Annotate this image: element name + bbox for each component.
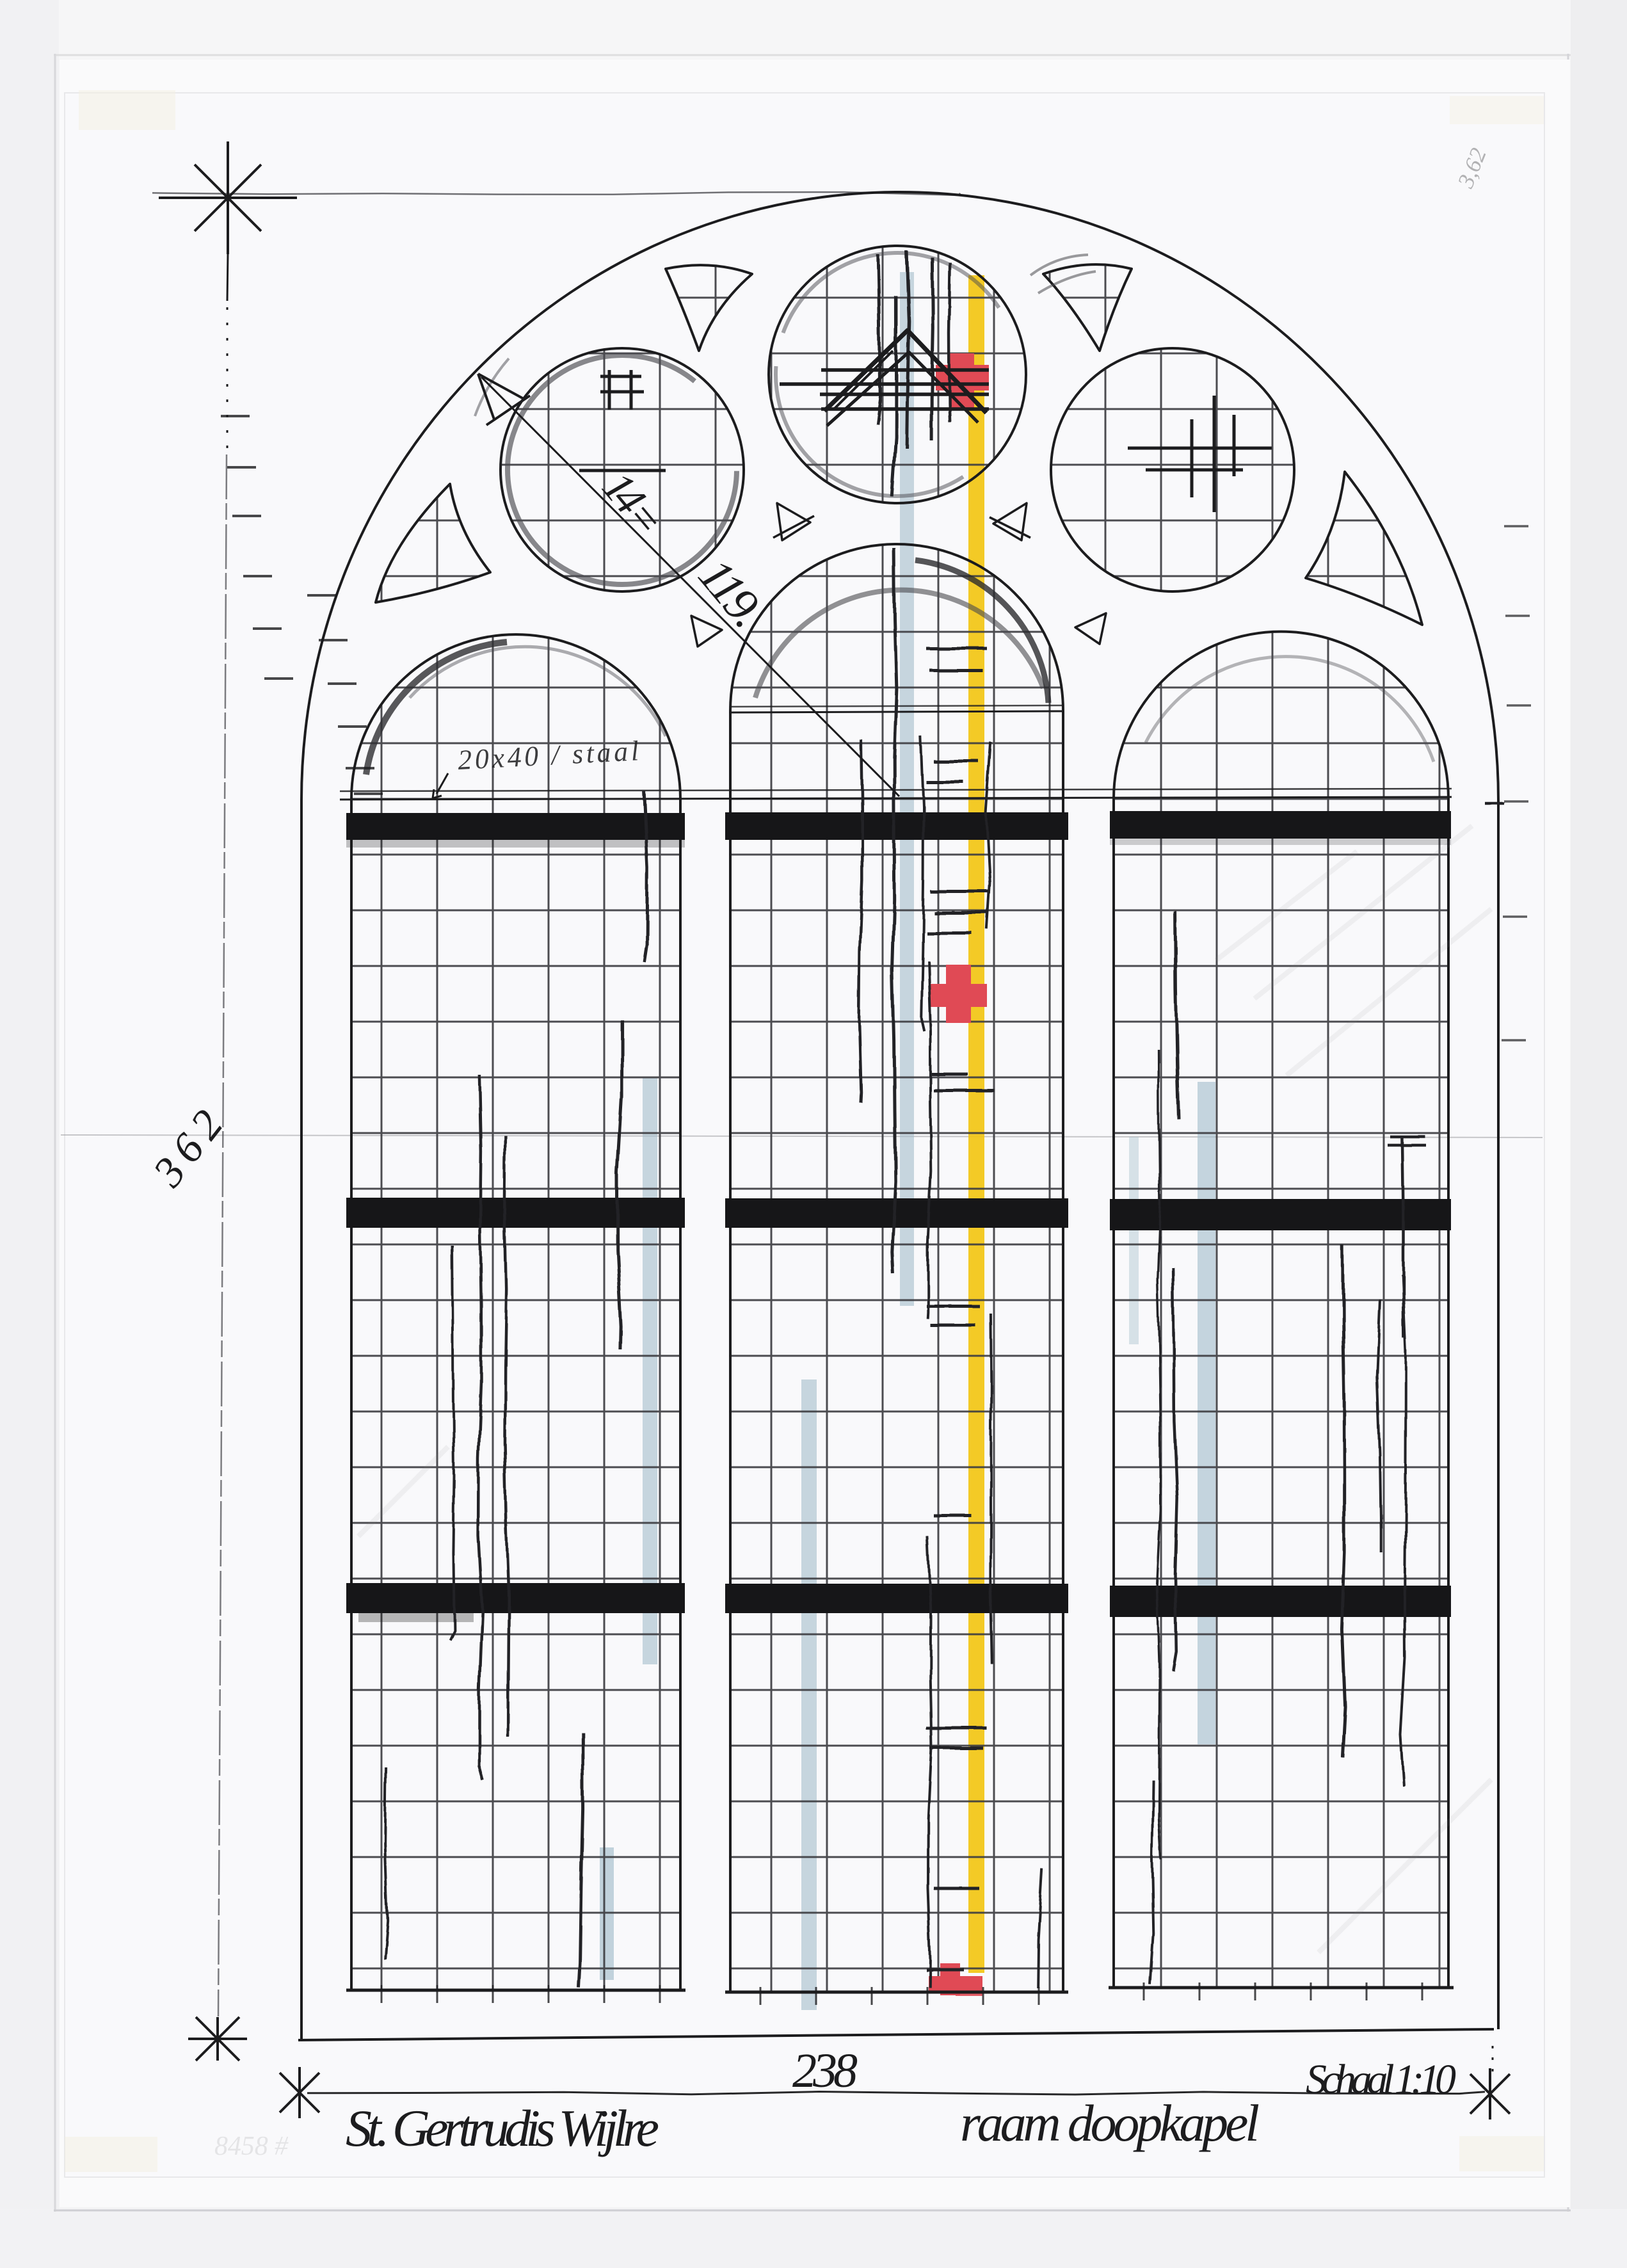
svg-text:St. Gertrudis Wijlre: St. Gertrudis Wijlre [346, 2099, 659, 2157]
svg-text:raam doopkapel: raam doopkapel [960, 2094, 1260, 2152]
svg-text:Schaal 1:10: Schaal 1:10 [1306, 2056, 1456, 2103]
svg-text:238: 238 [792, 2044, 858, 2098]
svg-text:8458 #: 8458 # [214, 2132, 289, 2161]
